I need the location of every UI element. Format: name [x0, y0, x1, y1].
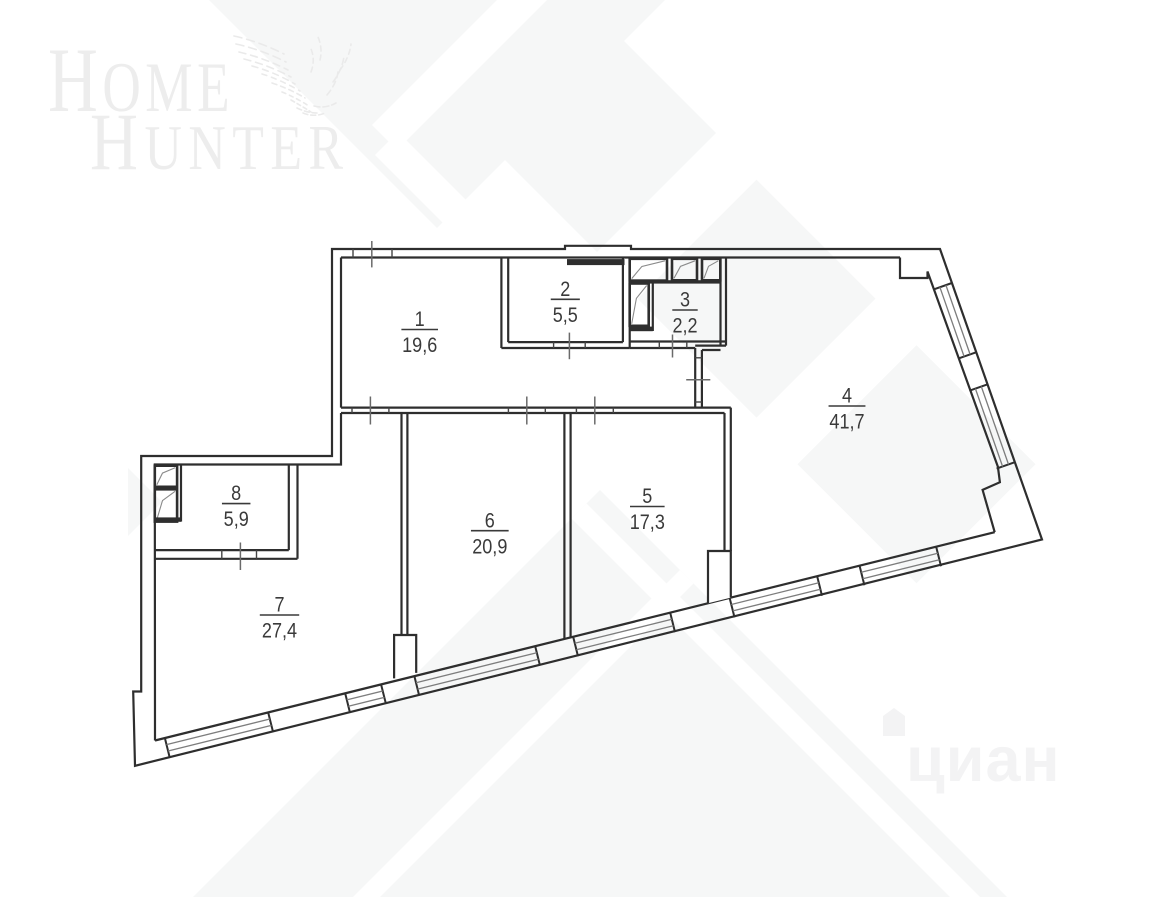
- svg-text:5,5: 5,5: [553, 303, 578, 327]
- svg-text:8: 8: [231, 482, 241, 506]
- svg-text:2,2: 2,2: [672, 314, 697, 338]
- svg-text:2: 2: [560, 277, 570, 301]
- svg-text:27,4: 27,4: [262, 619, 297, 643]
- svg-text:циан: циан: [906, 725, 1061, 795]
- svg-text:5,9: 5,9: [224, 508, 249, 532]
- svg-text:5: 5: [642, 485, 652, 509]
- svg-text:3: 3: [680, 288, 690, 312]
- svg-text:7: 7: [274, 593, 284, 617]
- svg-text:17,3: 17,3: [630, 511, 665, 535]
- svg-text:4: 4: [842, 384, 852, 408]
- svg-text:1: 1: [415, 308, 425, 332]
- svg-text:20,9: 20,9: [472, 535, 507, 559]
- svg-text:41,7: 41,7: [829, 410, 864, 434]
- svg-text:6: 6: [485, 509, 495, 533]
- svg-text:19,6: 19,6: [402, 334, 437, 358]
